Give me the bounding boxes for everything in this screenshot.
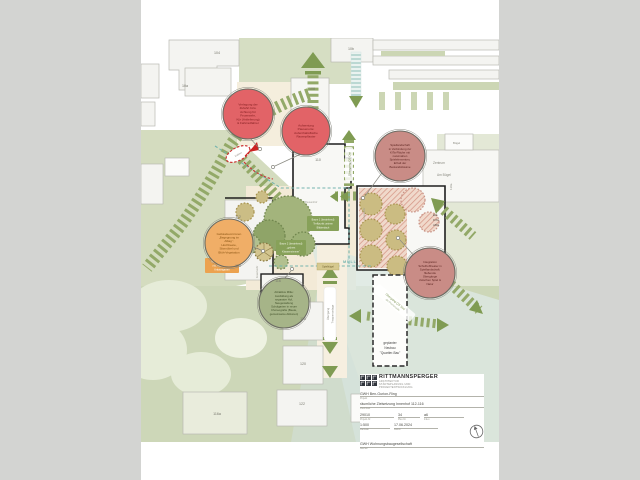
left-margin-band [0, 0, 141, 480]
svg-text:Baum 1 (bestehend): Baum 1 (bestehend) [312, 219, 335, 222]
arrow-up-icon [342, 130, 356, 140]
svg-text:116a: 116a [213, 412, 221, 416]
svg-text:Blätterdach: Blätterdach [317, 227, 330, 230]
svg-text:Übergang QS Ost: Übergang QS Ost [347, 152, 351, 176]
plan-sheet: MÜLL Zufahrt geplanter Neubau "Quartier-… [141, 38, 499, 442]
svg-text:Feuerwehr: Feuerwehr [255, 266, 259, 279]
svg-text:KiTa: KiTa [433, 218, 439, 222]
existing-tree [360, 245, 382, 267]
svg-text:& Fahrradfahrer: & Fahrradfahrer [237, 121, 259, 125]
title-block-header: RITTMANNSPERGER ARCHITEKTUR STÄDTEPLANUN… [360, 374, 484, 389]
svg-text:gemeinsame Aktionen): gemeinsame Aktionen) [270, 312, 299, 316]
treppenanlage-label: Übergang Treppenanlage [324, 287, 336, 341]
svg-text:108: 108 [309, 87, 315, 91]
svg-text:Übergang: Übergang [326, 307, 330, 320]
bubble-spiellandschaft: Spiellandschaft in Verbindung zur KiTa-F… [373, 129, 427, 183]
field-scale-date: 1:500 Maßstab 17.06.2024 Datum [360, 423, 484, 439]
firm-subtitle: PROJEKTENTWICKLUNG [379, 386, 438, 389]
page-canvas: MÜLL Zufahrt geplanter Neubau "Quartier-… [0, 0, 640, 480]
svg-text:112: 112 [235, 215, 241, 219]
svg-text:Pausenhof: Pausenhof [305, 200, 318, 204]
svg-text:110a: 110a [449, 183, 453, 190]
svg-text:Am Bügel: Am Bügel [437, 173, 451, 177]
north-arrow-icon [469, 424, 484, 439]
field-client: GWH Wohnungsbaugesellschaft Bauherr [360, 442, 484, 450]
existing-tree [385, 204, 405, 224]
svg-text:Treppenanlage: Treppenanlage [330, 304, 334, 323]
existing-tree [360, 219, 382, 241]
note-box-baum2: Baum 2 (bestehend) „grünes Klassenzimmer… [276, 240, 306, 255]
neubau-line: Neubau [384, 346, 395, 350]
svg-text:110: 110 [315, 158, 321, 162]
svg-text:„grünes: „grünes [287, 247, 296, 250]
neubau-line: geplanter [383, 341, 397, 345]
svg-text:120: 120 [300, 362, 306, 366]
svg-text:10b: 10b [348, 47, 354, 51]
svg-text:Treffpunkt unterm: Treffpunkt unterm [313, 223, 333, 226]
svg-text:114: 114 [235, 264, 241, 268]
arrow-down-icon [349, 96, 363, 108]
field-plan-title: räumliche Zielsetzung Innenhof 112-116 P… [360, 402, 484, 410]
svg-text:Bügel: Bügel [453, 141, 461, 145]
note-box-spielhuegel: Spielhügel [317, 263, 339, 270]
svg-text:Natur: Natur [426, 282, 433, 286]
svg-text:104: 104 [214, 51, 220, 55]
kita-tree [401, 188, 425, 212]
svg-text:Baum 2 (bestehend): Baum 2 (bestehend) [280, 243, 303, 246]
svg-text:Klassenzimmer“: Klassenzimmer“ [282, 251, 300, 254]
svg-text:10a: 10a [182, 84, 188, 88]
svg-text:Blüh-Vegetation: Blüh-Vegetation [218, 250, 240, 254]
svg-text:Bestandsbäume: Bestandsbäume [390, 165, 411, 169]
title-block: RITTMANNSPERGER ARCHITEKTUR STÄDTEPLANUN… [360, 374, 484, 450]
svg-text:Kräutergarten: Kräutergarten [214, 269, 230, 272]
svg-text:118: 118 [300, 317, 306, 321]
right-margin-band [499, 0, 640, 480]
qs-ost-label: Übergang QS Ost [345, 147, 353, 181]
existing-tree [386, 230, 406, 250]
svg-text:116: 116 [275, 279, 281, 283]
neubau-line: "Quartier-Bau" [380, 351, 401, 355]
svg-text:Rasenpflaster: Rasenpflaster [296, 135, 315, 139]
firm-logo-icon [360, 375, 377, 386]
svg-text:Spielhügel: Spielhügel [322, 266, 334, 269]
field-numbers: 29010 Projekt-Nr. 34 Plan-Nr. a6 Index [360, 413, 484, 421]
svg-text:ABG: ABG [433, 223, 440, 227]
muell-label: MÜLL [343, 259, 357, 264]
note-box-baum1: Baum 1 (bestehend) Treffpunkt unterm Blä… [307, 216, 339, 231]
svg-text:Zentrum: Zentrum [433, 161, 445, 165]
field-project: GWH Ben-Gurion-Ring Projekt [360, 392, 484, 400]
svg-text:Feuerwehr: Feuerwehr [362, 208, 366, 221]
svg-text:EG:: EG: [433, 213, 438, 217]
svg-text:122: 122 [299, 402, 305, 406]
